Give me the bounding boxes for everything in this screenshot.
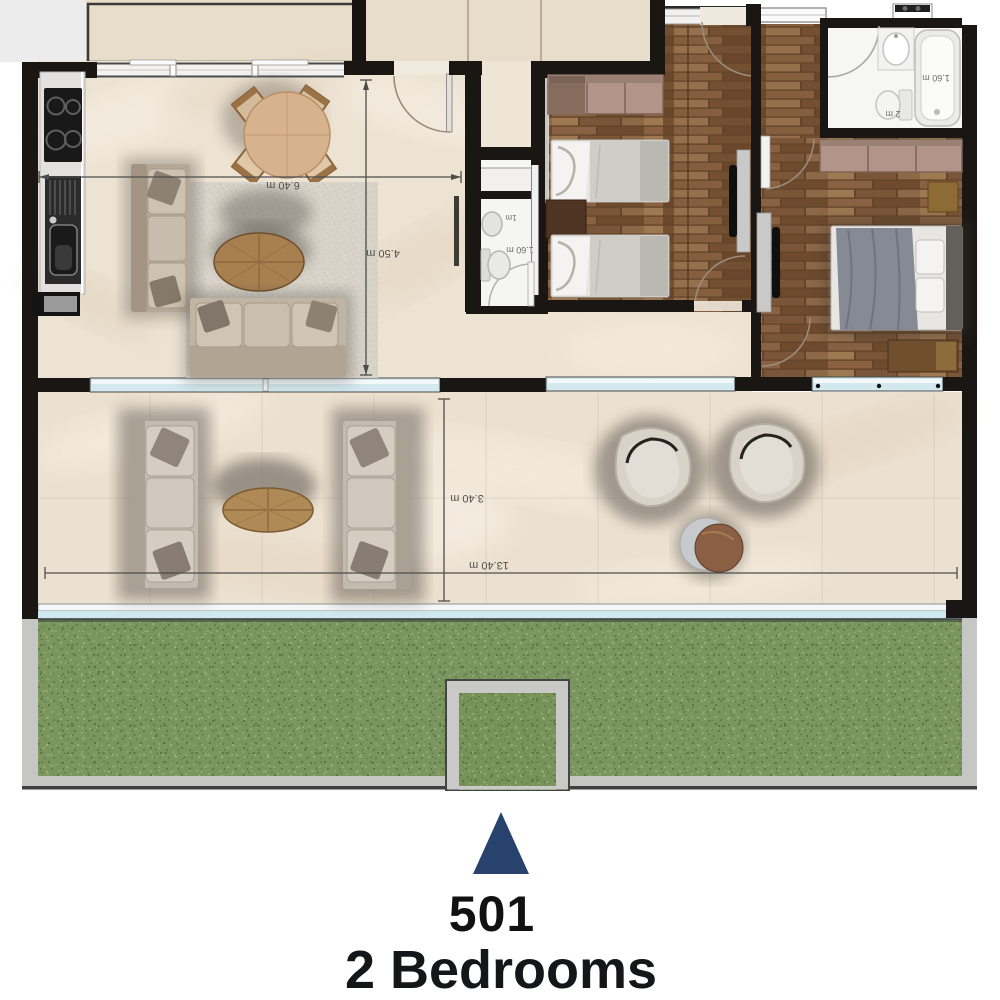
svg-text:4.50 m: 4.50 m bbox=[366, 247, 400, 259]
svg-text:1m: 1m bbox=[505, 213, 516, 222]
svg-text:1.60 m: 1.60 m bbox=[506, 245, 534, 255]
svg-text:2 Bedrooms: 2 Bedrooms bbox=[345, 940, 657, 1000]
svg-text:13.40 m: 13.40 m bbox=[469, 559, 509, 571]
svg-text:501: 501 bbox=[449, 886, 535, 942]
svg-text:3.40 m: 3.40 m bbox=[450, 492, 484, 504]
svg-text:6.40 m: 6.40 m bbox=[266, 179, 300, 191]
svg-text:1.60 m: 1.60 m bbox=[922, 73, 950, 83]
svg-text:2 m: 2 m bbox=[885, 109, 900, 119]
